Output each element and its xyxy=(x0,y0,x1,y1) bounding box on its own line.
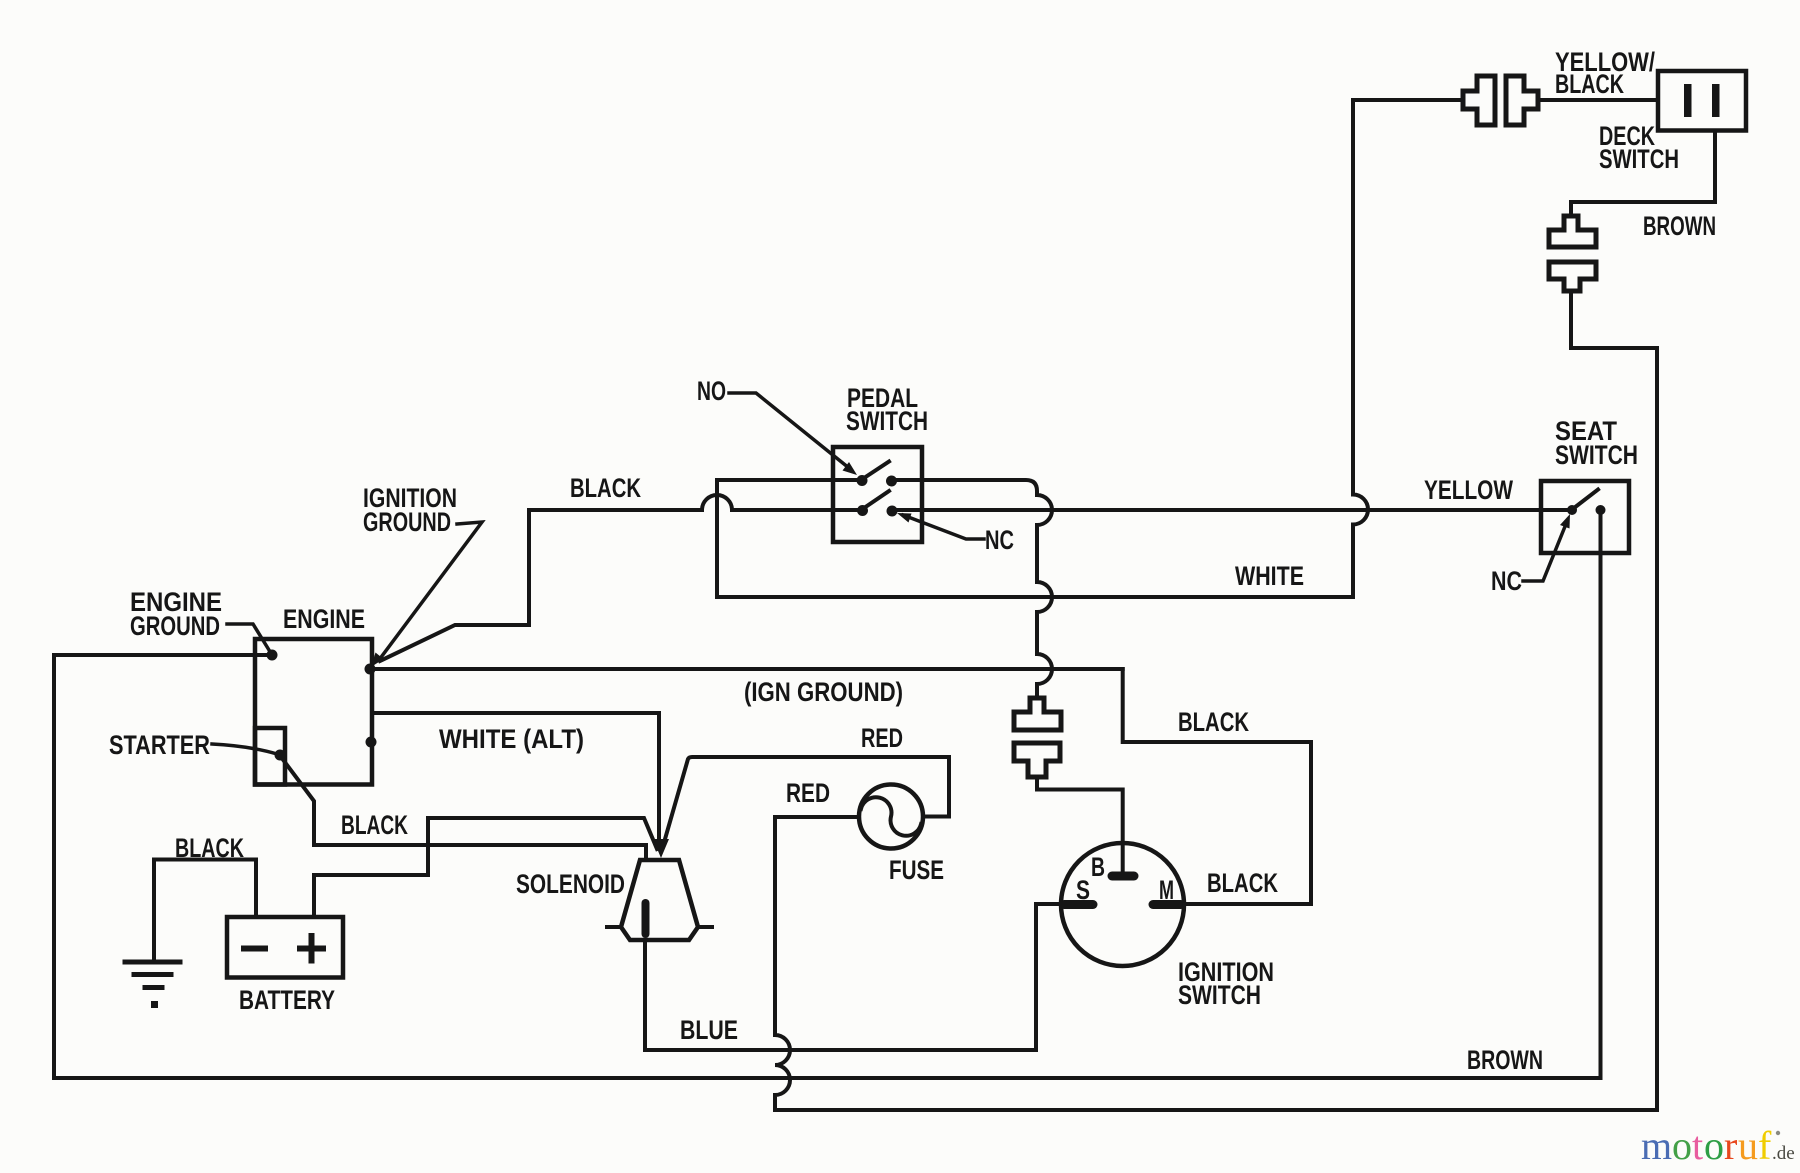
svg-text:.de: .de xyxy=(1772,1143,1795,1164)
svg-text:RED: RED xyxy=(786,778,830,808)
svg-text:GROUND: GROUND xyxy=(363,507,451,537)
svg-text:u: u xyxy=(1738,1123,1758,1168)
svg-text:t: t xyxy=(1692,1123,1703,1168)
svg-text:m: m xyxy=(1641,1123,1672,1168)
svg-text:BLACK: BLACK xyxy=(1207,868,1278,898)
svg-text:f: f xyxy=(1758,1123,1772,1168)
svg-text:r: r xyxy=(1724,1123,1737,1168)
svg-text:B: B xyxy=(1091,852,1105,882)
svg-text:ENGINE: ENGINE xyxy=(283,604,365,634)
svg-text:SWITCH: SWITCH xyxy=(1599,144,1679,174)
svg-text:S: S xyxy=(1076,875,1090,905)
svg-text:BLACK: BLACK xyxy=(341,810,408,840)
svg-text:NC: NC xyxy=(1491,566,1522,596)
svg-text:SWITCH: SWITCH xyxy=(1555,440,1638,470)
svg-text:SWITCH: SWITCH xyxy=(1178,980,1261,1010)
svg-text:BROWN: BROWN xyxy=(1643,211,1716,241)
svg-text:YELLOW: YELLOW xyxy=(1424,475,1513,505)
svg-text:SOLENOID: SOLENOID xyxy=(516,869,625,899)
svg-text:GROUND: GROUND xyxy=(130,611,220,641)
svg-text:SWITCH: SWITCH xyxy=(846,406,928,436)
svg-text:(IGN GROUND): (IGN GROUND) xyxy=(744,677,903,707)
svg-text:WHITE: WHITE xyxy=(1235,561,1304,591)
svg-text:RED: RED xyxy=(861,723,903,753)
svg-text:BLACK: BLACK xyxy=(1178,707,1249,737)
svg-text:BLACK: BLACK xyxy=(570,473,641,503)
svg-text:BATTERY: BATTERY xyxy=(239,985,335,1015)
svg-text:STARTER: STARTER xyxy=(109,730,210,760)
svg-text:WHITE (ALT): WHITE (ALT) xyxy=(439,724,584,754)
svg-text:BROWN: BROWN xyxy=(1467,1045,1543,1075)
svg-text:o: o xyxy=(1704,1123,1724,1168)
svg-text:NC: NC xyxy=(985,525,1014,555)
svg-text:BLUE: BLUE xyxy=(680,1015,738,1045)
svg-text:M: M xyxy=(1159,875,1174,905)
svg-text:o: o xyxy=(1672,1123,1692,1168)
svg-text:NO: NO xyxy=(697,376,726,406)
svg-text:BLACK: BLACK xyxy=(175,833,244,863)
svg-text:FUSE: FUSE xyxy=(889,855,944,885)
svg-text:BLACK: BLACK xyxy=(1555,69,1624,99)
